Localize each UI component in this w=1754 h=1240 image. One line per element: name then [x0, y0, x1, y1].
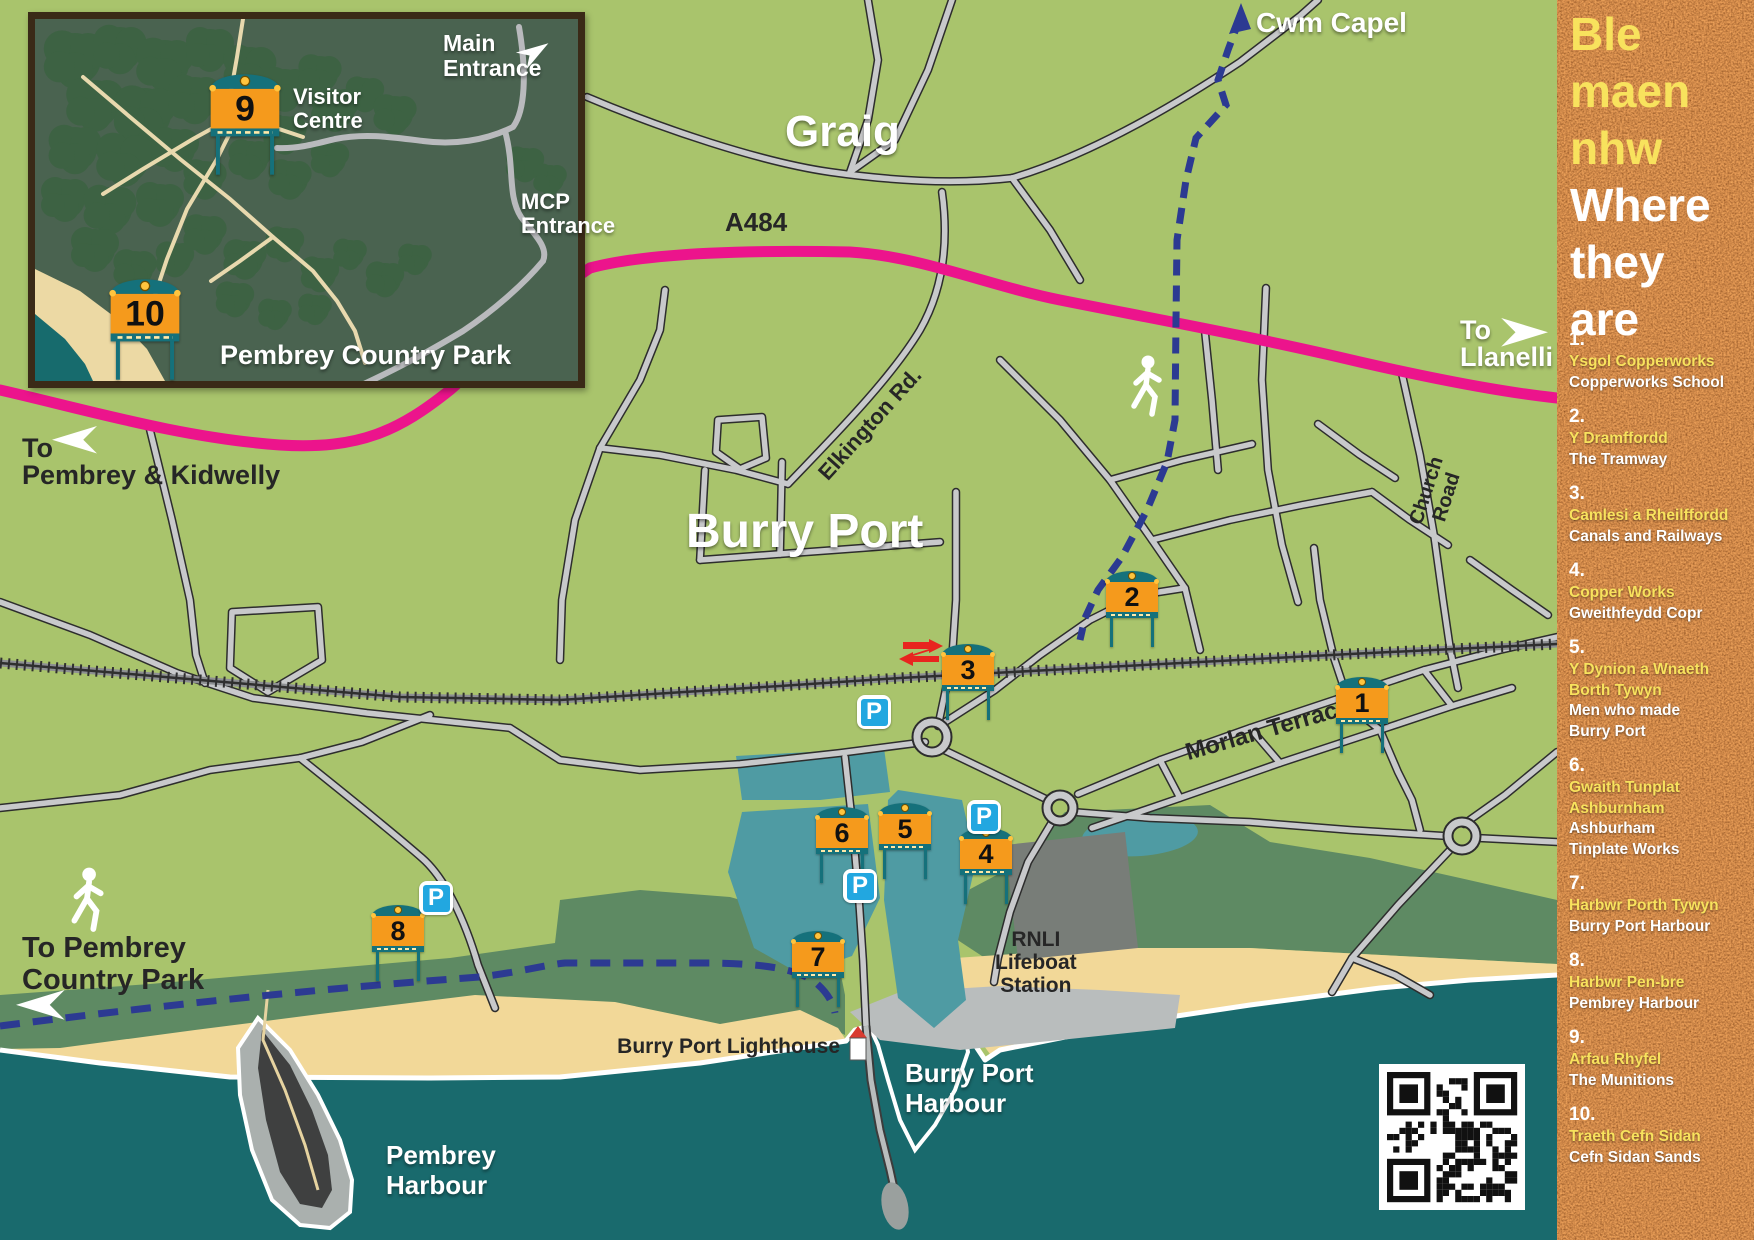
- label-burry-port-lighthouse: Burry Port Lighthouse: [617, 1036, 840, 1059]
- label-cwm-capel: Cwm Capel: [1256, 8, 1407, 38]
- label-to-pembrey-kidwelly-line2: Pembrey & Kidwelly: [22, 461, 280, 490]
- label-rnli: RNLILifeboatStation: [995, 928, 1077, 997]
- legend-item-welsh: Traeth Cefn Sidan: [1569, 1127, 1750, 1148]
- text-line: Ble: [1570, 6, 1711, 63]
- label-graig: Graig: [785, 108, 900, 156]
- legend-item-english: Men who madeBurry Port: [1569, 701, 1750, 742]
- marker-number: 4: [960, 839, 1012, 869]
- text-line: Visitor: [293, 85, 363, 109]
- legend-item-list: 1.Ysgol CopperworksCopperworks School2.Y…: [1569, 328, 1750, 1180]
- parking-icon: P: [843, 869, 877, 903]
- text-line: MCP: [521, 190, 615, 214]
- legend-item: 2.Y DramfforddThe Tramway: [1569, 405, 1750, 470]
- marker-number: 2: [1106, 582, 1158, 612]
- legend-item-welsh: Y Dynion a WnaethBorth Tywyn: [1569, 660, 1750, 701]
- text-line: To Pembrey: [22, 932, 204, 964]
- text-line: Burry Port: [905, 1058, 1034, 1088]
- map-marker-8: 8: [372, 905, 424, 952]
- text-line: Harbour: [905, 1088, 1034, 1118]
- label-to-pembrey-country-park: To PembreyCountry Park: [22, 932, 204, 996]
- legend-item: 7.Harbwr Porth TywynBurry Port Harbour: [1569, 872, 1750, 937]
- marker-finial-dot: [838, 808, 846, 816]
- sidebar-title-welsh: Blemaennhw: [1570, 6, 1711, 177]
- inset-label-main-entrance: MainEntrance: [443, 31, 541, 81]
- legend-item-number: 4.: [1569, 559, 1750, 583]
- label-to-llanelli-line2: Llanelli: [1460, 343, 1553, 372]
- marker-finial-dot: [140, 281, 151, 292]
- text-line: Harbour: [386, 1170, 496, 1200]
- inset-label-mcp-entrance: MCPEntrance: [521, 190, 615, 238]
- parking-icon: P: [419, 881, 453, 915]
- legend-item-number: 10.: [1569, 1103, 1750, 1127]
- legend-item-english: Pembrey Harbour: [1569, 994, 1750, 1015]
- label-to-llanelli-line1: To: [1460, 316, 1491, 345]
- legend-item-number: 1.: [1569, 328, 1750, 352]
- marker-number: 3: [942, 655, 994, 685]
- legend-item-welsh: Harbwr Pen-bre: [1569, 973, 1750, 994]
- marker-number: 10: [111, 294, 180, 334]
- parking-letter: P: [971, 804, 998, 831]
- marker-finial-dot: [240, 76, 251, 87]
- legend-item-welsh: Y Dramffordd: [1569, 429, 1750, 450]
- legend-item-english: Copperworks School: [1569, 373, 1750, 394]
- marker-number: 8: [372, 916, 424, 946]
- marker-number: 9: [211, 89, 280, 129]
- legend-item: 4.Copper WorksGweithfeydd Copr: [1569, 559, 1750, 624]
- legend-item-english: Canals and Railways: [1569, 527, 1750, 548]
- marker-number: 1: [1336, 688, 1388, 718]
- legend-item-number: 3.: [1569, 482, 1750, 506]
- legend-item: 6.Gwaith TunplatAshburnhamAshburhamTinpl…: [1569, 754, 1750, 860]
- parking-letter: P: [847, 873, 874, 900]
- map-marker-7: 7: [792, 931, 844, 978]
- map-marker-4: 4: [960, 828, 1012, 875]
- map-marker-2: 2: [1106, 571, 1158, 618]
- legend-item: 9.Arfau RhyfelThe Munitions: [1569, 1026, 1750, 1091]
- legend-item-number: 8.: [1569, 949, 1750, 973]
- label-burry-port: Burry Port: [686, 506, 923, 558]
- label-burry-port-harbour: Burry PortHarbour: [905, 1058, 1034, 1118]
- marker-number: 5: [879, 814, 931, 844]
- legend-item-english: The Tramway: [1569, 450, 1750, 471]
- parking-letter: P: [423, 885, 450, 912]
- legend-item-welsh: Gwaith TunplatAshburnham: [1569, 778, 1750, 819]
- marker-finial-dot: [964, 645, 972, 653]
- marker-number: 6: [816, 818, 868, 848]
- legend-sidebar: Blemaennhw Wheretheyare 1.Ysgol Copperwo…: [1557, 0, 1754, 1240]
- legend-item: 8.Harbwr Pen-brePembrey Harbour: [1569, 949, 1750, 1014]
- pembrey-country-park-inset: VisitorCentre MainEntrance Pembrey Count…: [28, 12, 585, 388]
- map-marker-3: 3: [942, 644, 994, 691]
- legend-item-english: Cefn Sidan Sands: [1569, 1148, 1750, 1169]
- marker-finial-dot: [901, 804, 909, 812]
- text-line: RNLI: [995, 928, 1077, 951]
- inset-title: Pembrey Country Park: [220, 341, 511, 370]
- legend-item-number: 9.: [1569, 1026, 1750, 1050]
- text-line: nhw: [1570, 120, 1711, 177]
- legend-item-welsh: Ysgol Copperworks: [1569, 352, 1750, 373]
- map-marker-5: 5: [879, 803, 931, 850]
- text-line: Main: [443, 31, 541, 56]
- text-line: Where: [1570, 177, 1711, 234]
- label-a484: A484: [725, 208, 787, 236]
- legend-item: 10.Traeth Cefn SidanCefn Sidan Sands: [1569, 1103, 1750, 1168]
- marker-finial-dot: [394, 906, 402, 914]
- parking-icon: P: [857, 695, 891, 729]
- legend-item-english: AshburhamTinplate Works: [1569, 819, 1750, 860]
- marker-finial-dot: [1358, 678, 1366, 686]
- label-pembrey-harbour: PembreyHarbour: [386, 1140, 496, 1200]
- marker-finial-dot: [1128, 572, 1136, 580]
- legend-item-welsh: Copper Works: [1569, 583, 1750, 604]
- legend-item-number: 6.: [1569, 754, 1750, 778]
- label-to-pembrey-kidwelly-line1: To: [22, 434, 53, 463]
- text-line: they: [1570, 234, 1711, 291]
- legend-item-number: 2.: [1569, 405, 1750, 429]
- text-line: Centre: [293, 109, 363, 133]
- sidebar-title: Blemaennhw Wheretheyare: [1570, 6, 1711, 348]
- text-line: Entrance: [443, 56, 541, 81]
- legend-item: 3.Camlesi a RheilfforddCanals and Railwa…: [1569, 482, 1750, 547]
- map-marker-1: 1: [1336, 677, 1388, 724]
- map-marker-6: 6: [816, 807, 868, 854]
- legend-item: 5.Y Dynion a WnaethBorth TywynMen who ma…: [1569, 636, 1750, 742]
- legend-item-english: Burry Port Harbour: [1569, 917, 1750, 938]
- text-line: Pembrey: [386, 1140, 496, 1170]
- legend-item-welsh: Harbwr Porth Tywyn: [1569, 896, 1750, 917]
- text-line: Station: [995, 974, 1077, 997]
- text-line: maen: [1570, 63, 1711, 120]
- qr-code: [1379, 1064, 1525, 1210]
- map-marker-9: 9: [211, 74, 280, 136]
- marker-number: 7: [792, 942, 844, 972]
- text-line: Lifeboat: [995, 951, 1077, 974]
- parking-letter: P: [861, 699, 888, 726]
- legend-item: 1.Ysgol CopperworksCopperworks School: [1569, 328, 1750, 393]
- legend-item-english: The Munitions: [1569, 1071, 1750, 1092]
- legend-item-number: 7.: [1569, 872, 1750, 896]
- sidebar-title-english: Wheretheyare: [1570, 177, 1711, 348]
- inset-label-visitor-centre: VisitorCentre: [293, 85, 363, 133]
- map-marker-10: 10: [111, 279, 180, 341]
- text-line: Entrance: [521, 214, 615, 238]
- legend-item-welsh: Camlesi a Rheilffordd: [1569, 506, 1750, 527]
- burry-port-map-poster: VisitorCentre MainEntrance Pembrey Count…: [0, 0, 1754, 1240]
- legend-item-number: 5.: [1569, 636, 1750, 660]
- parking-icon: P: [967, 800, 1001, 834]
- text-line: Country Park: [22, 964, 204, 996]
- legend-item-english: Gweithfeydd Copr: [1569, 604, 1750, 625]
- marker-finial-dot: [814, 932, 822, 940]
- legend-item-welsh: Arfau Rhyfel: [1569, 1050, 1750, 1071]
